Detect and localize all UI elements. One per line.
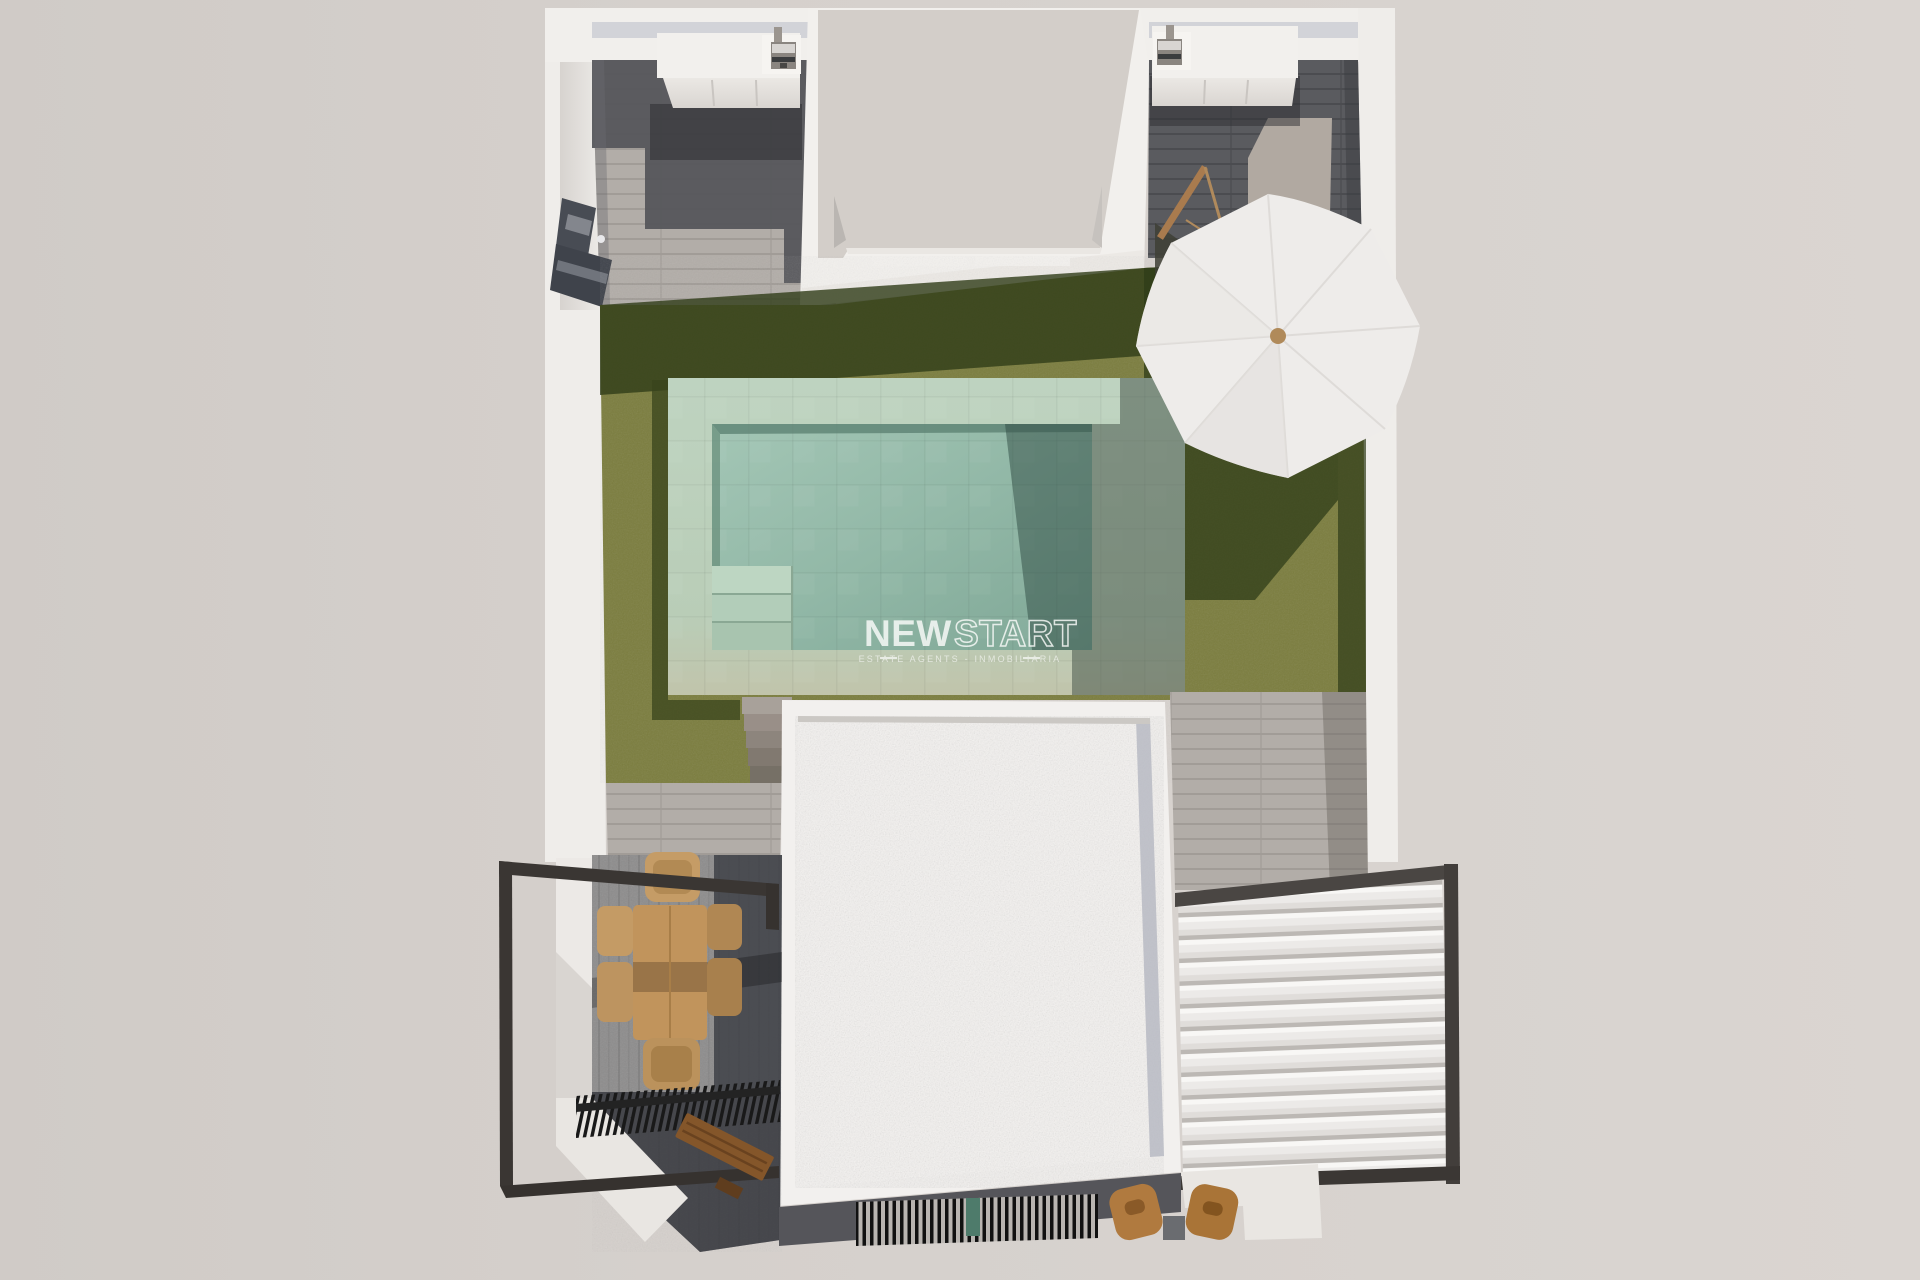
- svg-text:START: START: [954, 613, 1077, 654]
- svg-text:NEW: NEW: [864, 613, 952, 654]
